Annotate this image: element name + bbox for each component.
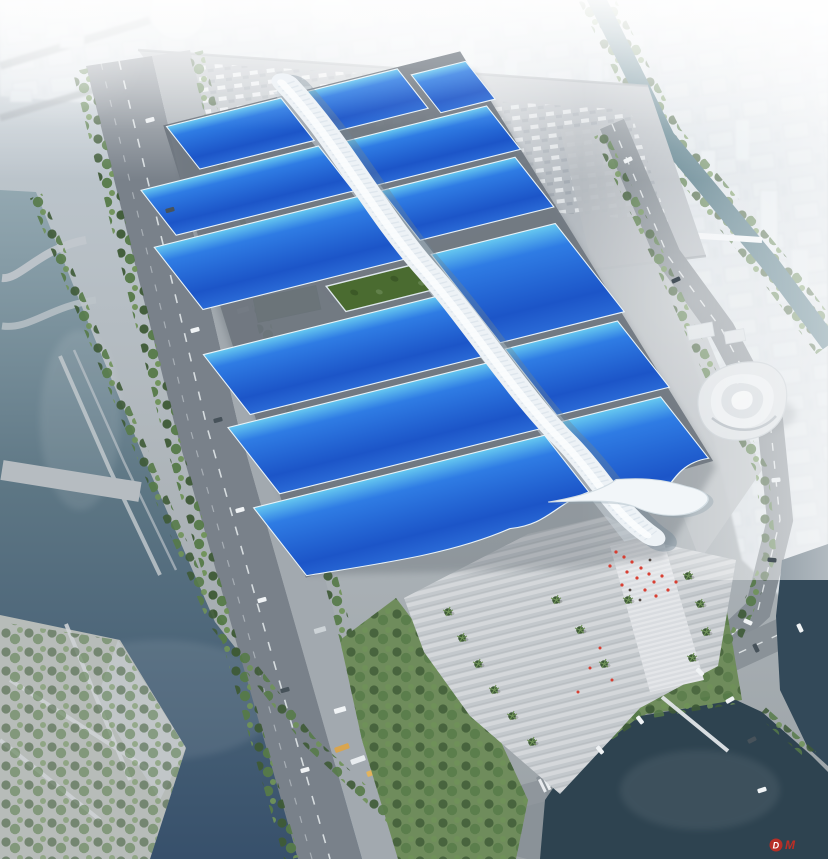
watermark-letter-d: D: [773, 841, 780, 851]
aerial-site-rendering: D M: [0, 0, 828, 859]
fog-overlay: [0, 0, 828, 130]
scene-canvas: D M: [0, 0, 828, 859]
watermark-letter-m: M: [785, 838, 796, 852]
